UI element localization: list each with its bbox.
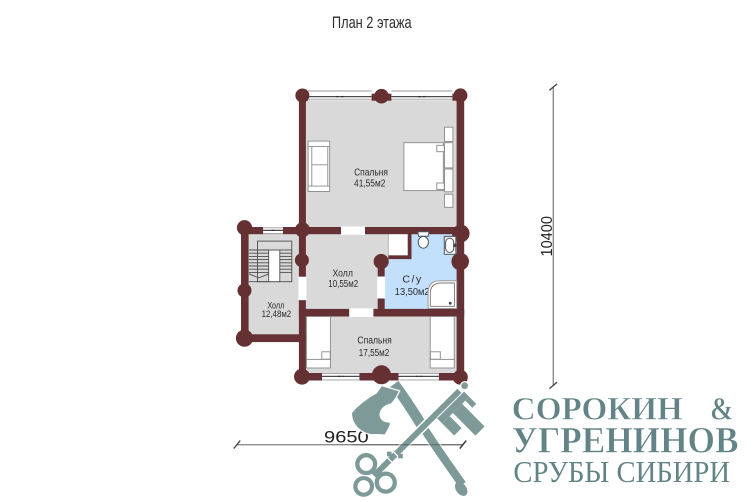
svg-text:17,55м2: 17,55м2 <box>359 346 389 358</box>
svg-text:С/у: С/у <box>402 273 423 285</box>
svg-text:Спальня: Спальня <box>357 335 391 347</box>
svg-text:13,50м2: 13,50м2 <box>395 286 430 298</box>
svg-text:План 2 этажа: План 2 этажа <box>332 14 412 32</box>
svg-text:41,55м2: 41,55м2 <box>354 178 385 190</box>
svg-text:12,48м2: 12,48м2 <box>262 309 292 320</box>
svg-text:10400: 10400 <box>539 216 557 256</box>
svg-text:10,55м2: 10,55м2 <box>328 278 358 289</box>
svg-text:СРУБЫ СИБИРИ: СРУБЫ СИБИРИ <box>513 455 730 489</box>
